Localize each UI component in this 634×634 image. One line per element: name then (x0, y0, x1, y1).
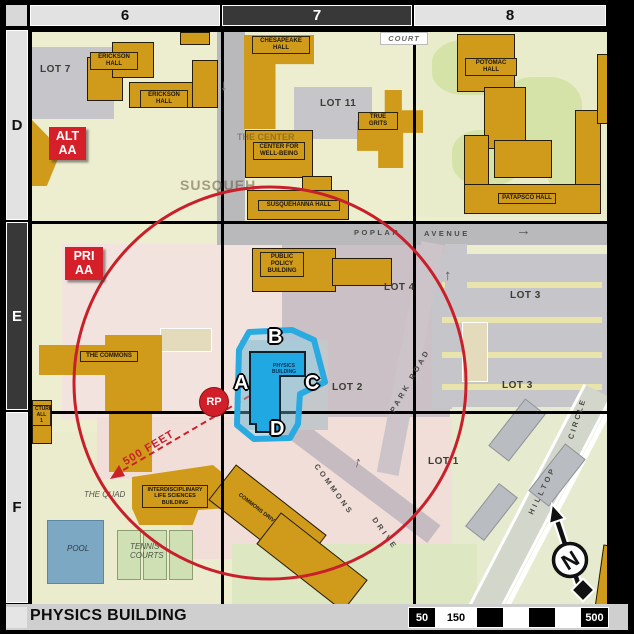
reference-point-marker: RP (199, 387, 229, 417)
grid-line-row-e-f (32, 411, 607, 414)
lecture-edge-label: CTURE ALL 1 (32, 405, 51, 426)
building-top-fragment (180, 32, 210, 45)
grid-line-col-6-7 (221, 32, 224, 604)
alt-shuttle-stop-marker: ALT AA (49, 127, 86, 160)
patapsco-label: PATAPSCO HALL (498, 193, 556, 204)
scale-500-label: 500 (585, 612, 603, 624)
tan-building-2 (462, 322, 488, 382)
row-d-label: D (12, 117, 23, 134)
scale-seg-6 (555, 608, 581, 627)
the-commons-label: THE COMMONS (80, 351, 138, 362)
physics-building-label: PHYSICS BUILDING (262, 363, 306, 375)
building-public-policy-arm (332, 258, 392, 286)
street-avenue-label: AVENUE (424, 229, 470, 238)
faded-the-center-text: THE CENTER (237, 132, 295, 142)
column-header-7-active[interactable]: 7 (222, 5, 412, 26)
column-header-6[interactable]: 6 (30, 5, 220, 26)
lot1-label: LOT 1 (428, 456, 459, 467)
footer-bar: PHYSICS BUILDING 50 150 500 (6, 604, 628, 630)
column-7-label: 7 (313, 7, 321, 24)
entrance-b-label: B (268, 326, 282, 349)
tennis-courts-label: TENNIS COURTS (130, 542, 176, 560)
campus-map: COMMONS DRIVE GARAGE ERICKSON HALL ERICK… (30, 30, 609, 606)
pri-shuttle-stop-marker: PRI AA (65, 247, 103, 280)
chesapeake-label: CHESAPEAKE HALL (252, 36, 310, 54)
lot4-label: LOT 4 (384, 282, 415, 293)
scale-150-label: 150 (447, 612, 465, 624)
lot3-lower-label: LOT 3 (502, 380, 533, 391)
scale-seg-50: 50 (409, 608, 435, 627)
lot3-road-arrow: ↑ (444, 267, 452, 284)
row-header-d[interactable]: D (6, 30, 28, 220)
potomac-label: POTOMAC HALL (465, 58, 517, 76)
building-potomac-low (494, 140, 552, 178)
erickson-lower-label: ERICKSON HALL (140, 90, 188, 108)
poplar-direction-arrow: → (516, 222, 531, 239)
building-erickson-arm (192, 60, 218, 108)
scale-seg-4 (503, 608, 529, 627)
row-header-f[interactable]: F (6, 412, 28, 603)
scale-seg-3 (477, 608, 503, 627)
lot2-label: LOT 2 (332, 382, 363, 393)
scale-seg-500: 500 (581, 608, 608, 627)
ilsb-label: INTERDISCIPLINARY LIFE SCIENCES BUILDING (142, 485, 208, 508)
compass-arrowhead (549, 504, 565, 524)
row-header-e-active[interactable]: E (6, 222, 28, 410)
corner-box (6, 5, 27, 26)
pool-label: POOL (67, 544, 89, 553)
entrance-d-label: D (270, 418, 284, 441)
lot11-label: LOT 11 (320, 98, 356, 109)
building-right-edge-top (597, 54, 609, 124)
the-quad-label: THE QUAD (84, 490, 125, 499)
campus-map-page: { "header": { "col6": "6", "col7": "7", … (0, 0, 634, 634)
street-court-label: COURT (380, 32, 428, 45)
scale-bar: 50 150 500 (408, 607, 609, 628)
tan-building-1 (160, 328, 212, 352)
lot7-label: LOT 7 (40, 64, 71, 75)
column-6-label: 6 (121, 7, 129, 24)
column-8-label: 8 (506, 7, 514, 24)
center-well-being-label: CENTER FOR WELL-BEING (253, 142, 305, 160)
row-e-label: E (12, 308, 22, 325)
footer-left-square (6, 607, 27, 628)
grid-line-col-7-8 (413, 32, 416, 604)
street-poplar-label: POPLAR (354, 228, 400, 237)
column-header-8[interactable]: 8 (414, 5, 606, 26)
erickson-upper-label: ERICKSON HALL (90, 52, 138, 70)
scale-seg-150: 150 (435, 608, 477, 627)
map-title: PHYSICS BUILDING (30, 607, 187, 625)
col6-road-arrow: ↓ (220, 77, 228, 94)
row-f-label: F (12, 499, 21, 516)
susquehanna-label: SUSQUEHANNA HALL (258, 200, 340, 211)
scale-50-label: 50 (416, 612, 428, 624)
public-policy-label: PUBLIC POLICY BUILDING (260, 252, 304, 277)
lot3-upper-label: LOT 3 (510, 290, 541, 301)
faded-susqueh-text: SUSQUEH (180, 177, 256, 193)
compass-rose: N (527, 498, 597, 606)
entrance-c-label: C (305, 372, 319, 395)
true-grits-label: TRUE GRITS (358, 112, 398, 130)
entrance-a-label: A (234, 372, 248, 395)
scale-seg-5 (529, 608, 555, 627)
